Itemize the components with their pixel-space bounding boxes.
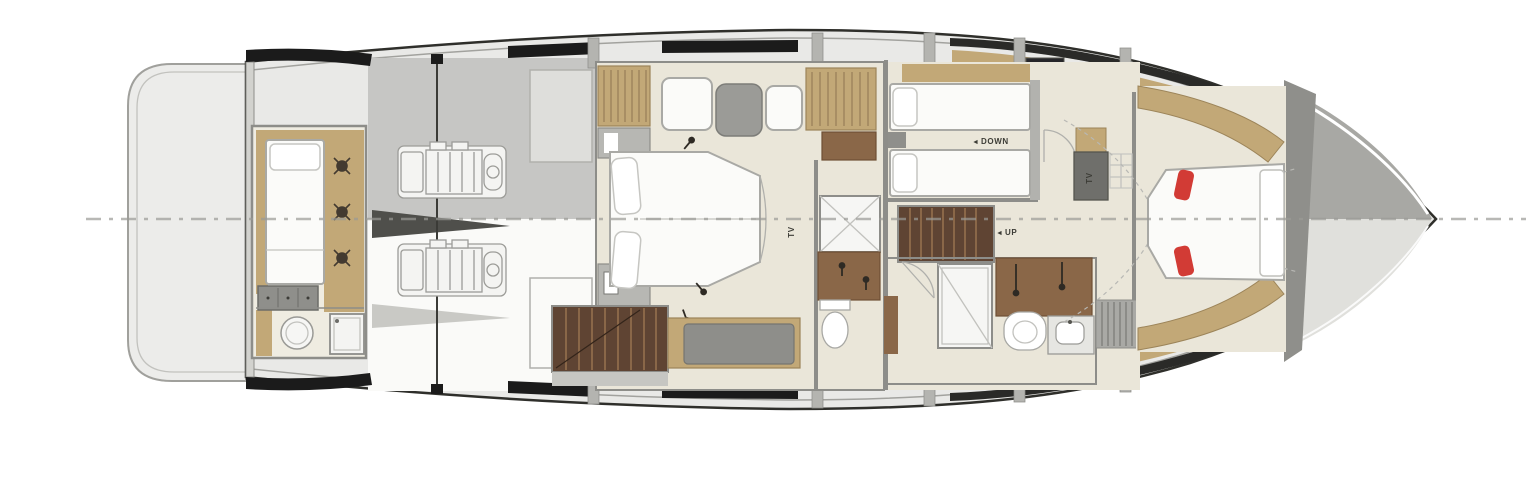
up-label: UP [1005, 228, 1017, 237]
guest-shower [938, 264, 992, 348]
stair-landing-strip [552, 372, 668, 386]
crew-bed-pillow [270, 144, 320, 170]
master-shower [820, 196, 880, 252]
guest-toilet [1004, 312, 1046, 350]
up-arrow-icon: ◄ [996, 230, 1004, 237]
twin-headboard-shelf [902, 64, 1030, 82]
bulkhead-cap-top [431, 54, 443, 64]
landing-tv-label: TV [1085, 172, 1094, 183]
swim-platform [128, 64, 246, 381]
master-bench [668, 318, 800, 368]
engine-port-icon [398, 142, 506, 198]
crew-shower [330, 314, 364, 354]
master-wardrobe-left [598, 66, 650, 126]
crew-cabin-cabinet [256, 310, 272, 356]
master-seat-right [766, 86, 802, 130]
down-label: DOWN [981, 137, 1009, 146]
master-chest [822, 132, 876, 160]
window-band-master-top [662, 40, 798, 53]
guest-vanity [1048, 316, 1094, 354]
twin-cabin-wall-bottom [886, 198, 1038, 202]
master-toilet [820, 300, 850, 348]
faucet-icon [1068, 320, 1072, 324]
master-cabin: TV [552, 62, 884, 390]
twin-foot-wall [1030, 80, 1040, 200]
master-stairs [552, 306, 668, 386]
down-arrow-icon: ◄ [972, 139, 980, 146]
guest-bath-cabinet [884, 296, 898, 354]
swim-platform-deck [128, 64, 246, 381]
master-vanity-chair [716, 84, 762, 136]
bulkhead-cap-bottom [431, 384, 443, 394]
crew-cabin-wood-floor [324, 130, 364, 312]
vip-bed-headboard [1260, 170, 1284, 276]
twin-bed-bottom-pillow [893, 154, 917, 192]
bow-deck-lower [1292, 219, 1432, 346]
engine-starboard-icon [398, 240, 506, 296]
floor-plan-drawing: TV ◄ UP TV [0, 0, 1533, 481]
landing-stairs-up [898, 206, 994, 262]
crew-desk [258, 286, 318, 310]
bow-deck [1284, 80, 1432, 362]
master-tv-label: TV [787, 226, 796, 237]
master-seat-left [662, 78, 712, 130]
yacht-lower-deck-floor-plan: TV ◄ UP TV [0, 0, 1533, 481]
master-vanity [818, 252, 880, 300]
master-wardrobe-right [806, 68, 876, 130]
master-bed-pillow-bottom [611, 231, 642, 289]
master-bed [610, 152, 766, 289]
deck-hatch-upper [530, 70, 592, 162]
vip-bed [1148, 164, 1284, 280]
twin-bed-top-pillow [893, 88, 917, 126]
crew-cabin [252, 126, 366, 358]
guest-bath-upper-wall [996, 258, 1092, 316]
master-bench-cushion [684, 324, 794, 364]
master-bed-pillow-top [611, 157, 642, 215]
twin-nightstand [888, 132, 906, 148]
